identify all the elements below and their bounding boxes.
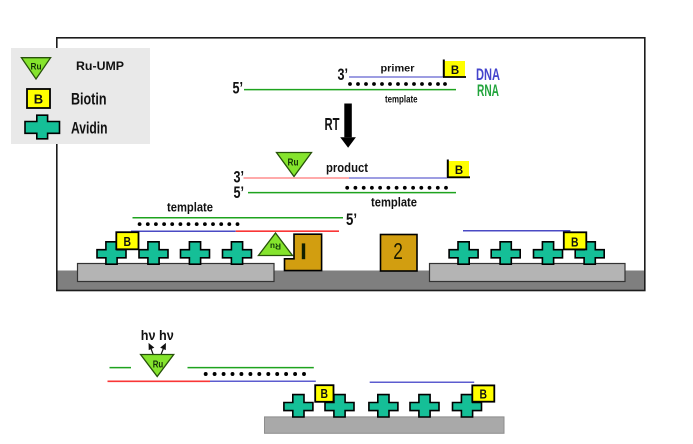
svg-text:B: B — [571, 234, 579, 249]
svg-text:B: B — [451, 65, 459, 77]
svg-text:template: template — [371, 195, 417, 210]
svg-text:RT: RT — [325, 114, 340, 134]
svg-text:B: B — [124, 234, 132, 249]
svg-text:product: product — [326, 161, 369, 175]
svg-text:Ru-UMP: Ru-UMP — [76, 61, 124, 73]
svg-text:5’: 5’ — [233, 80, 244, 98]
svg-text:Ru: Ru — [153, 359, 164, 371]
svg-text:B: B — [321, 386, 329, 401]
svg-text:Biotin: Biotin — [71, 91, 107, 109]
svg-text:Ru: Ru — [31, 62, 42, 73]
svg-text:Ru: Ru — [270, 241, 281, 251]
svg-text:template: template — [385, 93, 418, 105]
svg-text:B: B — [480, 386, 488, 401]
svg-text:B: B — [455, 165, 463, 177]
svg-text:2: 2 — [393, 238, 403, 264]
svg-text:B: B — [34, 92, 43, 107]
svg-text:RNA: RNA — [477, 81, 499, 100]
svg-text:hν hν: hν hν — [141, 328, 174, 343]
svg-text:Avidin: Avidin — [71, 120, 108, 138]
svg-text:Ru: Ru — [288, 157, 299, 169]
svg-text:template: template — [167, 200, 213, 215]
svg-text:3’: 3’ — [338, 66, 349, 84]
svg-text:5’: 5’ — [234, 184, 245, 202]
svg-text:primer: primer — [381, 63, 415, 75]
svg-text:5’: 5’ — [346, 211, 357, 229]
